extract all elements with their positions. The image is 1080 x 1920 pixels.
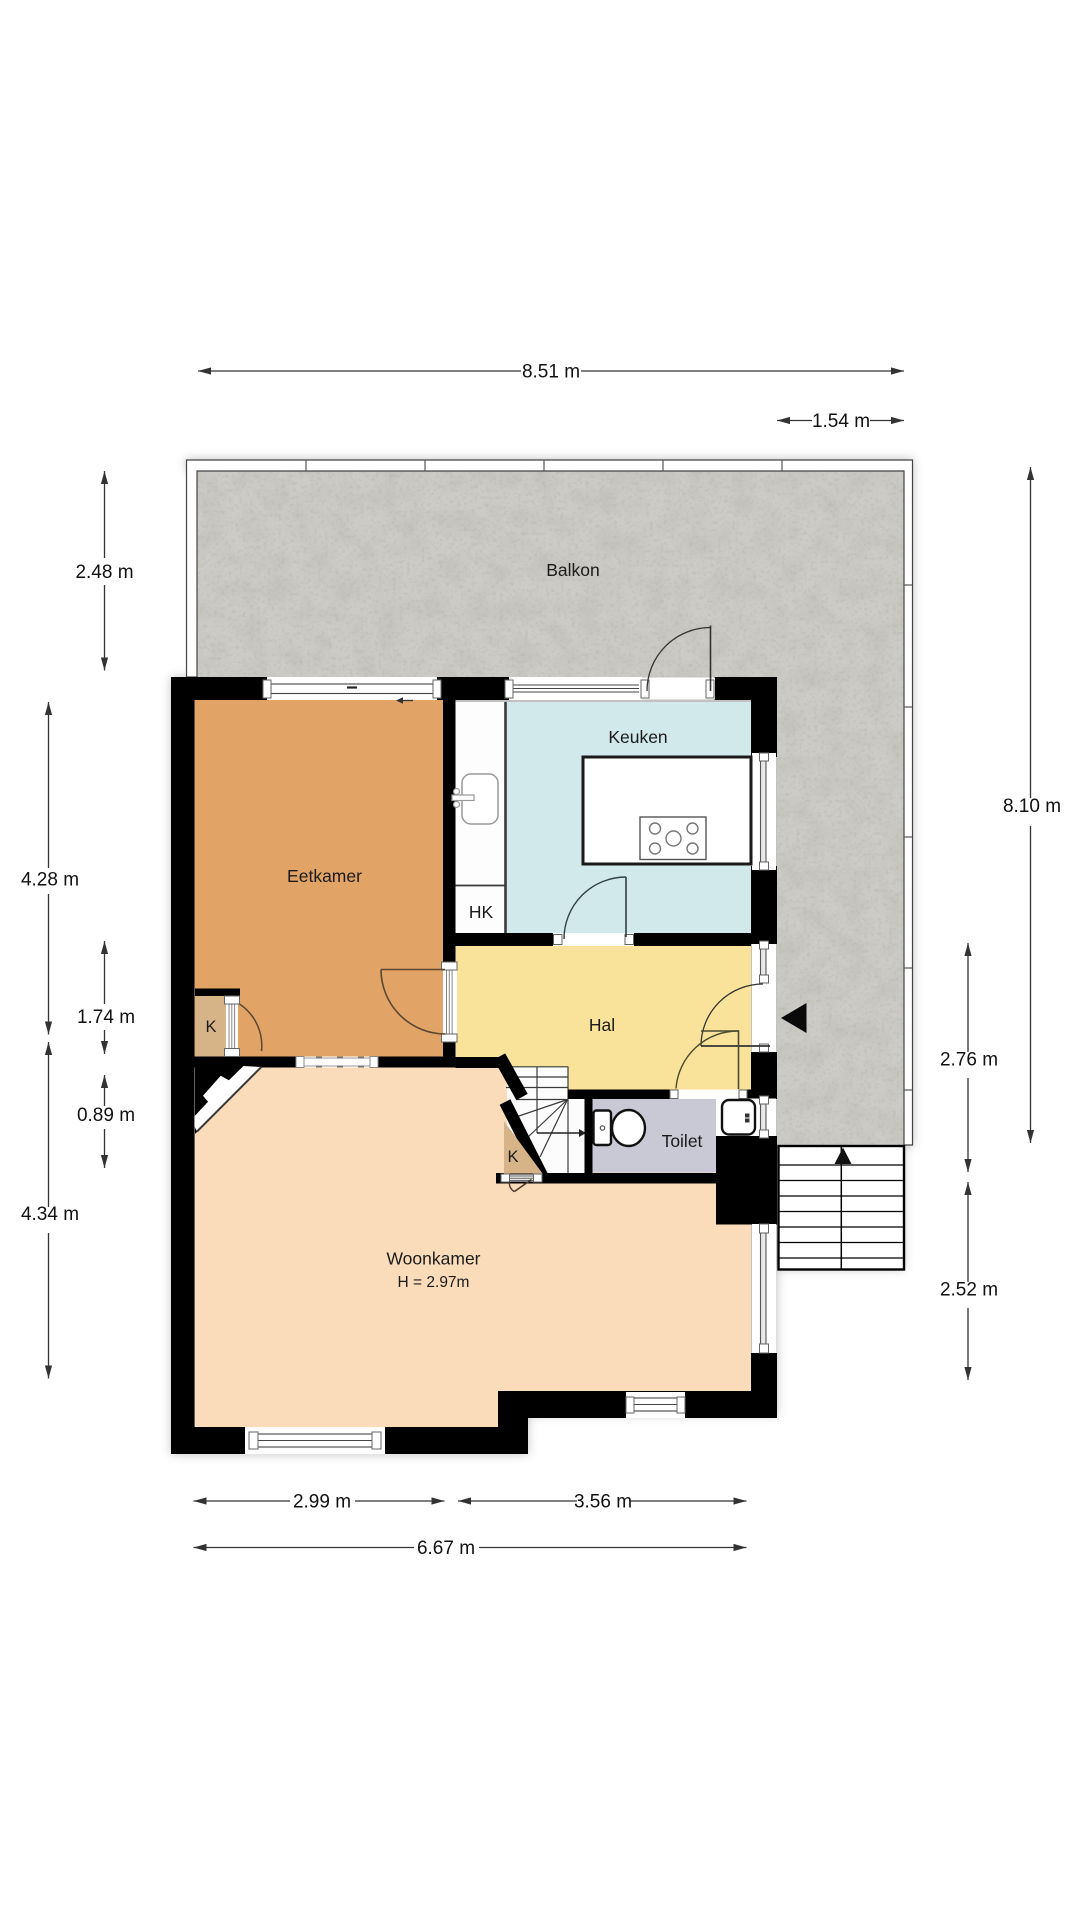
svg-text:4.28 m: 4.28 m (21, 870, 79, 891)
svg-text:8.10 m: 8.10 m (1003, 796, 1061, 817)
svg-text:Toilet: Toilet (662, 1131, 703, 1151)
svg-text:1.74 m: 1.74 m (77, 1007, 135, 1028)
svg-text:3.56 m: 3.56 m (574, 1492, 632, 1513)
svg-text:K: K (205, 1018, 216, 1036)
svg-text:Keuken: Keuken (608, 727, 667, 747)
svg-text:Hal: Hal (589, 1015, 615, 1035)
svg-text:2.52 m: 2.52 m (940, 1280, 998, 1301)
svg-text:H = 2.97m: H = 2.97m (398, 1274, 470, 1291)
svg-text:Eetkamer: Eetkamer (287, 866, 362, 886)
svg-text:HK: HK (469, 902, 494, 922)
svg-text:K: K (507, 1148, 518, 1166)
svg-text:2.99 m: 2.99 m (293, 1492, 351, 1513)
svg-text:0.89 m: 0.89 m (77, 1105, 135, 1126)
svg-text:Balkon: Balkon (546, 560, 600, 580)
svg-text:2.48 m: 2.48 m (75, 562, 133, 583)
svg-text:8.51 m: 8.51 m (522, 362, 580, 383)
svg-text:4.34 m: 4.34 m (21, 1204, 79, 1225)
svg-text:6.67 m: 6.67 m (417, 1538, 475, 1559)
svg-text:1.54 m: 1.54 m (812, 411, 870, 432)
svg-text:Woonkamer: Woonkamer (386, 1249, 480, 1269)
svg-text:2.76 m: 2.76 m (940, 1050, 998, 1071)
